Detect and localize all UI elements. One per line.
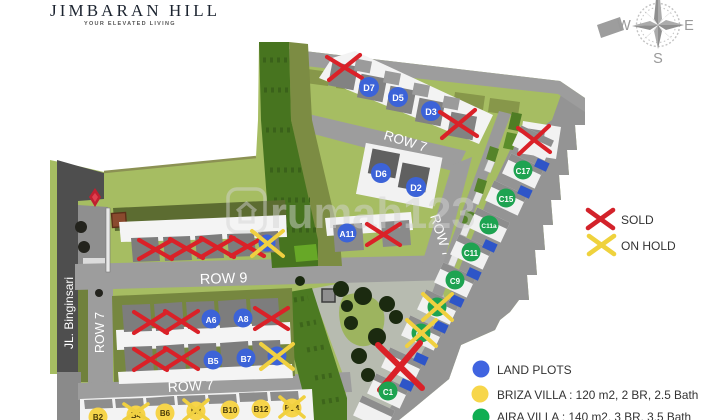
svg-text:ROW 7: ROW 7	[93, 312, 107, 353]
svg-text:ON HOLD: ON HOLD	[621, 239, 676, 253]
svg-text:rumah123: rumah123	[270, 190, 476, 238]
svg-text:W: W	[617, 18, 631, 34]
svg-text:D3: D3	[425, 107, 437, 117]
svg-text:A11: A11	[339, 229, 354, 239]
svg-text:D2: D2	[410, 183, 422, 193]
svg-text:C9: C9	[450, 277, 461, 286]
svg-text:YOUR ELEVATED LIVING: YOUR ELEVATED LIVING	[84, 21, 176, 27]
svg-text:B7: B7	[241, 354, 252, 364]
svg-text:BRIZA VILLA : 120 m2, 2 BR, 2.: BRIZA VILLA : 120 m2, 2 BR, 2.5 Bath	[497, 388, 698, 402]
svg-text:C15: C15	[499, 195, 514, 204]
svg-text:AIRA VILLA : 140 m2, 3 BR, 3.5: AIRA VILLA : 140 m2, 3 BR, 3.5 Bath	[497, 410, 691, 420]
svg-text:B10: B10	[223, 406, 238, 415]
svg-text:LAND PLOTS: LAND PLOTS	[497, 363, 572, 377]
svg-text:JL. Binginsari: JL. Binginsari	[62, 277, 76, 349]
svg-text:B12: B12	[254, 405, 269, 414]
svg-text:JIMBARAN HILL: JIMBARAN HILL	[50, 1, 220, 20]
svg-text:D7: D7	[363, 83, 375, 93]
svg-text:A8: A8	[238, 314, 249, 324]
svg-text:ROW 9: ROW 9	[200, 270, 248, 288]
svg-text:SOLD: SOLD	[621, 213, 654, 227]
svg-text:D6: D6	[375, 169, 387, 179]
svg-text:E: E	[684, 18, 694, 34]
svg-text:D5: D5	[392, 93, 404, 103]
svg-text:S: S	[653, 51, 663, 67]
svg-text:B6: B6	[160, 409, 171, 418]
svg-text:C1: C1	[383, 388, 394, 397]
svg-text:C11: C11	[464, 249, 479, 258]
svg-text:B2: B2	[93, 413, 104, 420]
svg-text:C11a: C11a	[481, 223, 497, 230]
svg-text:B5: B5	[208, 356, 219, 366]
svg-text:C17: C17	[516, 167, 531, 176]
svg-text:A6: A6	[206, 315, 217, 325]
